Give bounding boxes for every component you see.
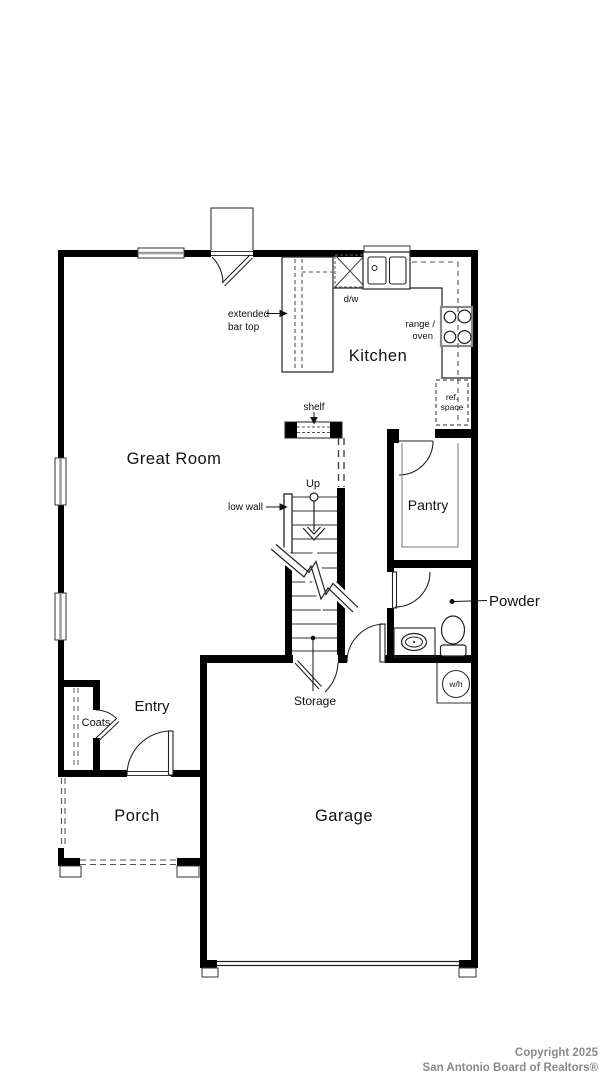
garage-door-opening <box>202 959 476 977</box>
dishwasher <box>335 255 365 287</box>
pantry-door <box>399 441 433 475</box>
hall-garage-door <box>347 624 385 662</box>
kitchen-layer <box>282 252 472 425</box>
annotation-dishwasher: d/w <box>344 294 359 305</box>
floor-plan-page: Great Room Kitchen Pantry Powder Entry C… <box>0 0 603 1080</box>
copyright-line-2: San Antonio Board of Realtors® <box>423 1061 598 1076</box>
back-door <box>211 208 253 286</box>
cased-opening-dashed <box>339 438 345 487</box>
windows-layer <box>55 246 476 977</box>
porch-footings <box>60 866 199 877</box>
annotation-low-wall: low wall <box>228 502 263 513</box>
annotation-extended-bar-top-2: bar top <box>228 322 260 333</box>
room-label-entry: Entry <box>134 698 170 715</box>
window-top-greatroom <box>138 248 184 258</box>
toilet <box>441 616 467 656</box>
annotation-up: Up <box>306 478 320 490</box>
annotation-shelf: shelf <box>303 402 324 413</box>
low-wall <box>284 494 292 553</box>
coats-rod-dashed <box>74 688 78 768</box>
powder-door <box>393 572 431 608</box>
room-label-kitchen: Kitchen <box>349 347 408 365</box>
fixtures-layer <box>74 443 471 768</box>
window-left-lower <box>55 593 66 640</box>
room-label-garage: Garage <box>315 807 373 825</box>
floor-plan-svg: Great Room Kitchen Pantry Powder Entry C… <box>0 0 603 1080</box>
room-label-porch: Porch <box>114 807 160 825</box>
storage-door <box>295 661 338 693</box>
up-arrow <box>303 493 325 540</box>
entry-door <box>127 731 173 777</box>
room-label-storage: Storage <box>294 694 336 708</box>
powder-vanity <box>394 628 435 657</box>
room-label-great-room: Great Room <box>127 450 222 468</box>
annotation-range-2: oven <box>412 331 433 342</box>
room-label-coats: Coats <box>82 717 111 729</box>
annotation-extended-bar-top-1: extended <box>228 309 269 320</box>
annotation-range-1: range / <box>405 319 435 330</box>
copyright-line-1: Copyright 2025 <box>423 1046 598 1061</box>
pantry-shelf-line <box>402 443 458 547</box>
copyright-footer: Copyright 2025 San Antonio Board of Real… <box>423 1046 598 1076</box>
annotation-ref-space-2: space <box>441 402 464 412</box>
room-label-pantry: Pantry <box>408 497 448 513</box>
kitchen-sink <box>363 252 410 289</box>
range-oven <box>441 307 472 346</box>
window-left-upper <box>55 458 66 505</box>
bar-top-counter <box>282 257 333 372</box>
annotation-water-heater: w/h <box>448 679 463 689</box>
annotation-ref-space-1: ref. <box>446 392 458 402</box>
doors-layer <box>96 208 433 777</box>
room-label-powder: Powder <box>489 593 540 610</box>
